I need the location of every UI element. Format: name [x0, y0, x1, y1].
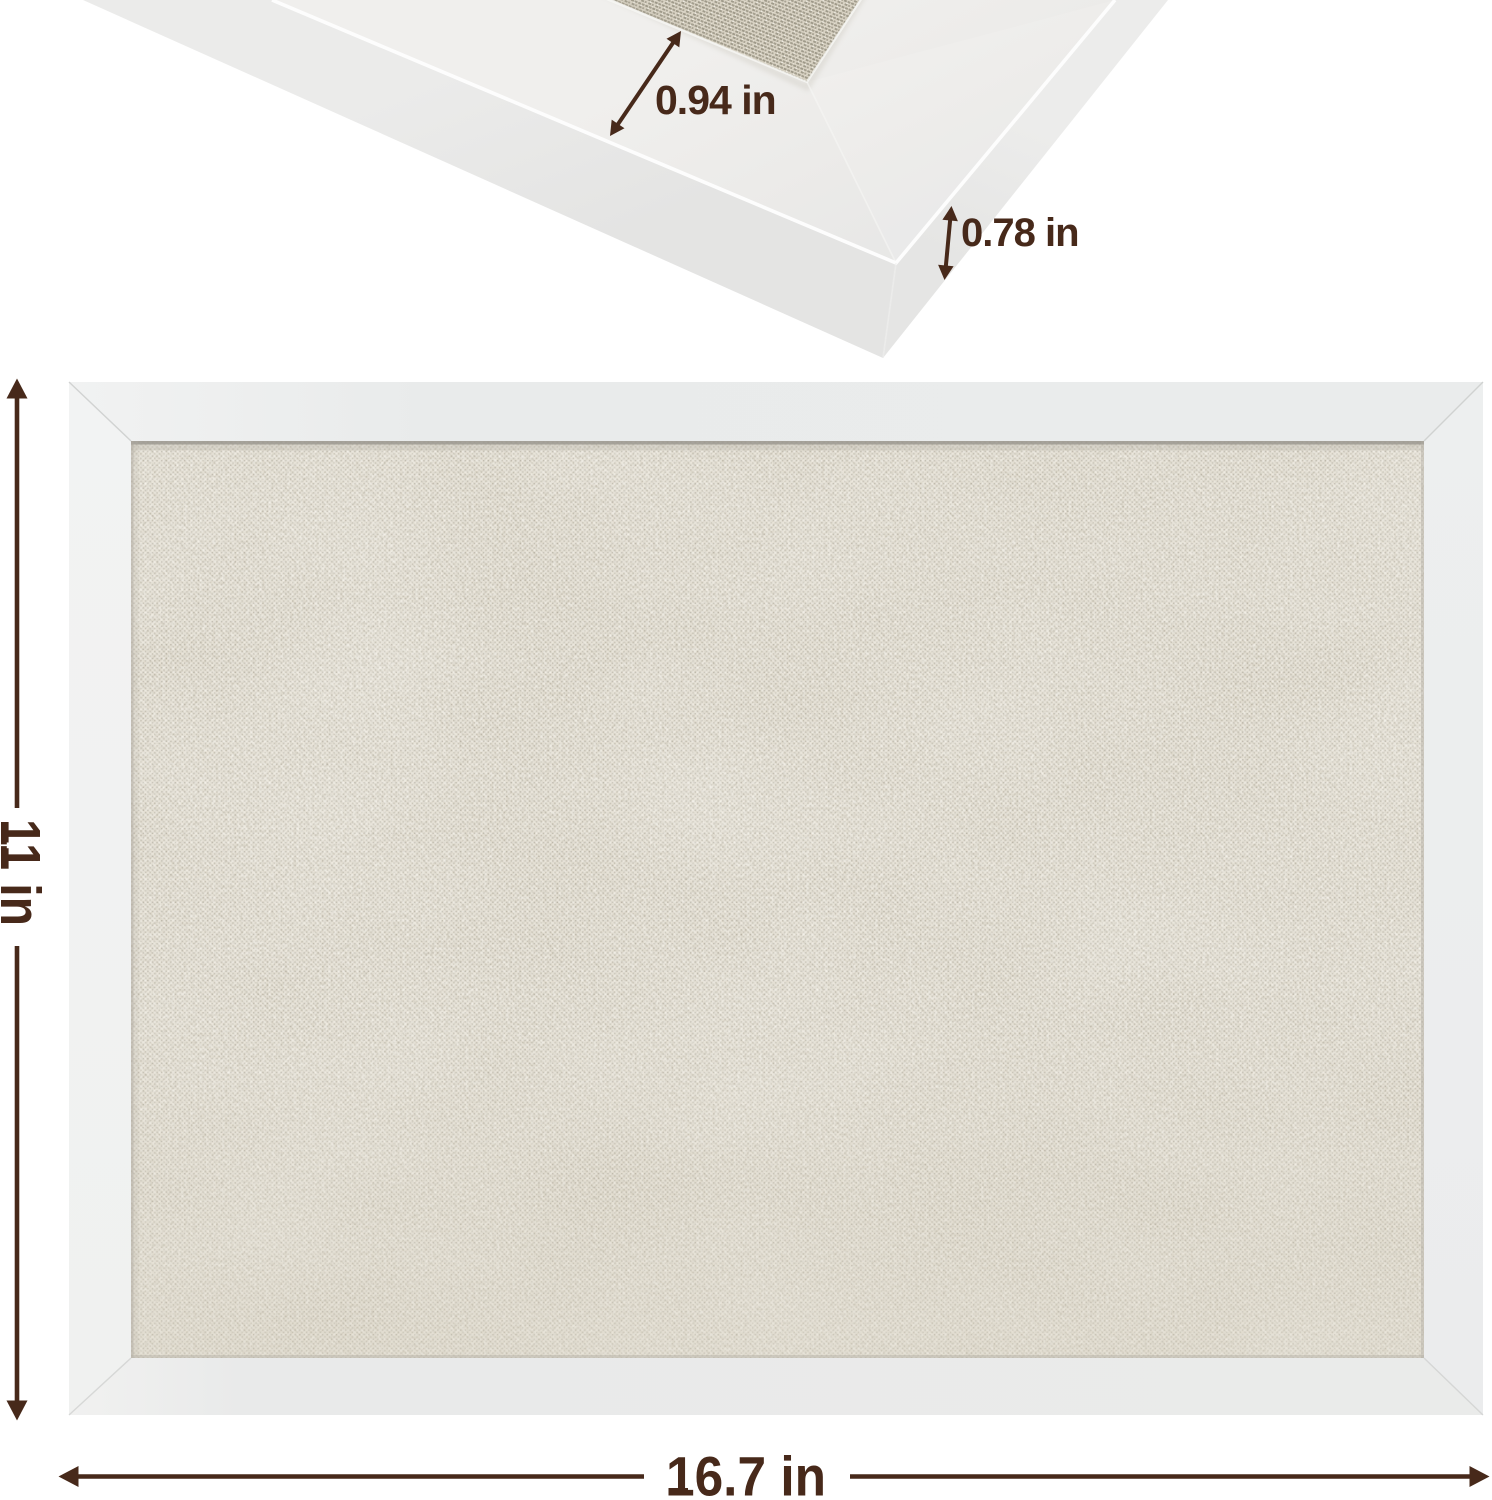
svg-text:0.94 in: 0.94 in: [655, 77, 776, 123]
svg-text:0.78 in: 0.78 in: [961, 211, 1079, 255]
svg-text:16.7 in: 16.7 in: [666, 1445, 826, 1500]
